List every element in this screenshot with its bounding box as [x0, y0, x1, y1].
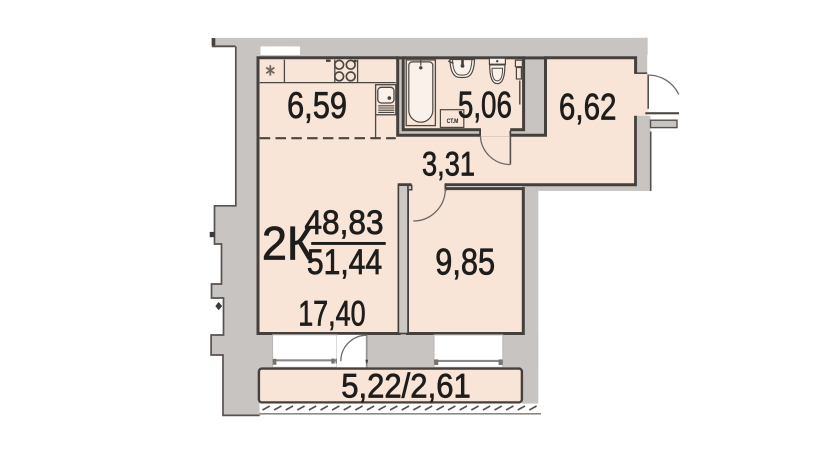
svg-text:СТ.М: СТ.М: [447, 118, 459, 124]
svg-text:3,31: 3,31: [422, 145, 475, 184]
svg-text:6,62: 6,62: [559, 87, 617, 128]
svg-text:6,59: 6,59: [287, 85, 347, 126]
svg-text:17,40: 17,40: [298, 294, 365, 333]
svg-text:5,06: 5,06: [458, 84, 512, 126]
svg-text:5,22/2,61: 5,22/2,61: [341, 366, 470, 405]
svg-text:48,83: 48,83: [304, 203, 383, 241]
svg-text:51,44: 51,44: [307, 242, 382, 282]
svg-text:9,85: 9,85: [435, 242, 495, 283]
